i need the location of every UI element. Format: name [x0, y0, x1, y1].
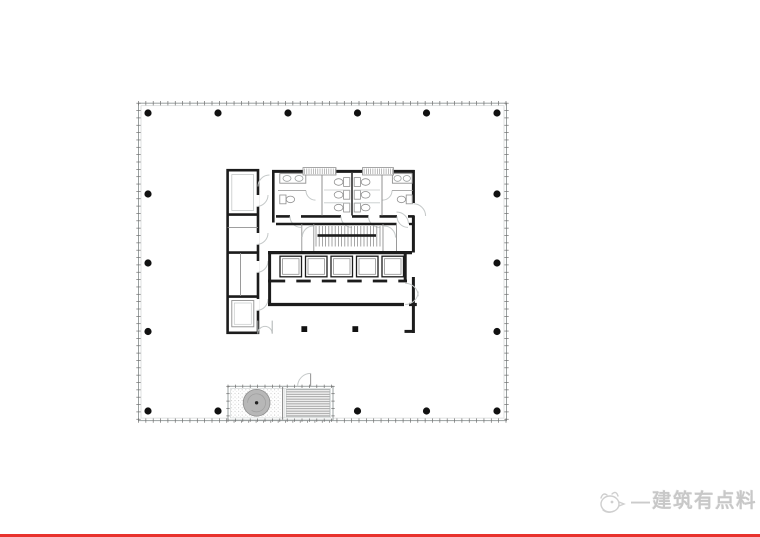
column-dot: [423, 109, 430, 116]
elevator-car: [382, 256, 404, 277]
fan-hub: [255, 401, 258, 404]
stair-handrail: [318, 234, 377, 237]
wc-tank: [344, 178, 350, 187]
wc-bowl: [334, 179, 343, 186]
free-column: [352, 326, 358, 332]
door-swing-arc: [413, 204, 425, 216]
column-dot: [214, 407, 221, 414]
wc-tank: [354, 190, 360, 199]
elevator-door-jamb: [373, 280, 387, 283]
column-dot: [214, 109, 221, 116]
watermark: — 建筑有点料: [595, 487, 757, 517]
elevator-car-inner: [334, 259, 351, 275]
column-dot: [493, 328, 500, 335]
louver-grille: [286, 389, 330, 417]
elevator-door-jamb: [322, 280, 336, 283]
corridor-double-door: [258, 321, 272, 334]
toilet-door-arcs: [290, 191, 408, 228]
column-dot: [284, 109, 291, 116]
column-dot: [144, 328, 151, 335]
column-dot: [493, 109, 500, 116]
south-corridor: [258, 321, 358, 334]
column-dot: [354, 109, 361, 116]
wc-bowl: [334, 192, 343, 199]
elevator-door-jamb: [268, 280, 285, 283]
elevator-door-jamb: [296, 280, 310, 283]
elevator-car: [357, 256, 379, 277]
free-column: [301, 326, 307, 332]
elevator-car-inner: [283, 259, 300, 275]
boundary-outer-line: [139, 103, 507, 420]
service-core: [228, 168, 426, 334]
elevator-car-inner: [308, 259, 325, 275]
column-dot: [144, 407, 151, 414]
elevator-door-jamb: [398, 280, 407, 283]
column-dot: [493, 259, 500, 266]
watermark-dash: —: [631, 493, 650, 512]
elevator-door-jamb: [347, 280, 361, 283]
elevator-car: [331, 256, 353, 277]
column-dot: [144, 259, 151, 266]
wc-tank: [354, 178, 360, 187]
column-dot: [493, 407, 500, 414]
south-annex: [226, 373, 334, 422]
curtain-wall-boundary: [136, 101, 508, 423]
floor-plan-canvas: [0, 0, 760, 537]
wc-bowl: [361, 179, 370, 186]
elevator-car: [306, 256, 328, 277]
elevator-car-inner: [359, 259, 376, 275]
mullion-ticks: [136, 101, 508, 423]
column-dot: [354, 407, 361, 414]
watermark-text: 建筑有点料: [652, 492, 757, 512]
column-dot: [144, 190, 151, 197]
elevator-bank: [268, 252, 418, 306]
wc-bowl: [361, 192, 370, 199]
elevator-car-inner: [385, 259, 402, 275]
wc-bowl: [334, 204, 343, 211]
elevator-car: [280, 256, 302, 277]
column-dot: [423, 407, 430, 414]
wc-tank: [344, 203, 350, 212]
wc-bowl: [361, 204, 370, 211]
column-grid: [144, 109, 500, 414]
bird-doodle-icon: [595, 488, 629, 516]
column-dot: [144, 109, 151, 116]
stair-block: [276, 212, 415, 252]
column-dot: [493, 190, 500, 197]
toilet-block: [276, 168, 415, 228]
annex-door-arc: [298, 373, 311, 386]
lobby-double-door-arcs: [405, 283, 418, 304]
elevator-cars: [268, 256, 407, 282]
vent-grille: [363, 168, 394, 175]
west-service-wing: [228, 170, 270, 333]
wc-tank: [354, 203, 360, 212]
wc-tank: [344, 190, 350, 199]
boundary-inner-line: [141, 106, 504, 418]
